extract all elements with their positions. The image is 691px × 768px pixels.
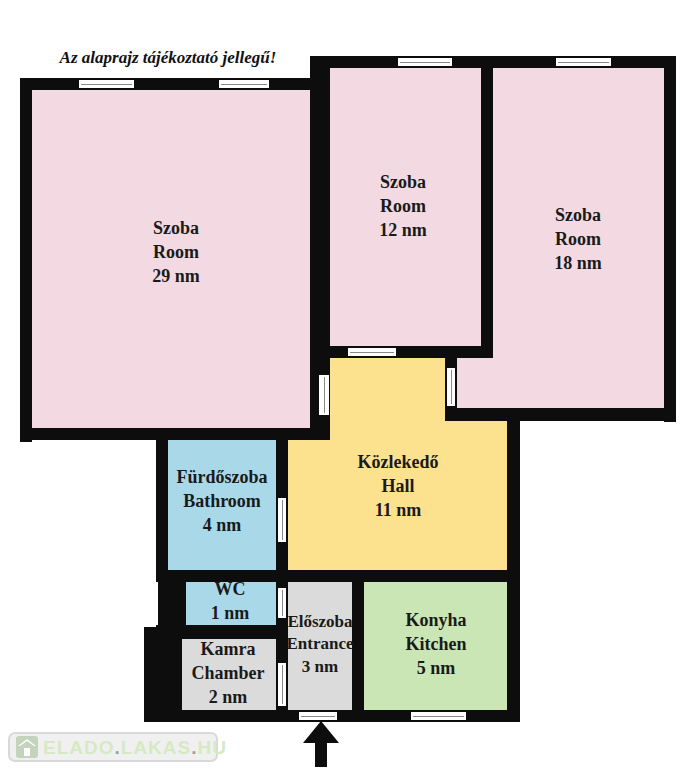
room-name-hu: Kamra [192,638,265,662]
wall [507,408,520,722]
room-18-area [457,358,493,408]
room-name-en: Room [152,241,200,265]
room-name-hu: Szoba [152,217,200,241]
room-name-en: Room [554,228,602,252]
window [555,57,612,67]
room-name-en: Room [379,195,427,219]
room-29-label: Szoba Room 29 nm [152,217,200,288]
kitchen-label: Konyha Kitchen 5 nm [405,609,466,680]
room-area: 18 nm [554,252,602,276]
window [78,79,135,89]
room-name-hu: Konyha [405,609,466,633]
room-12-label: Szoba Room 12 nm [379,171,427,242]
room-name-en: Chamber [192,662,265,686]
room-area: 5 nm [405,657,466,681]
wall [144,627,182,722]
wall [664,56,676,422]
house-icon [16,736,38,758]
room-name-en: Hall [358,475,439,499]
room-name-hu: Szoba [554,204,602,228]
room-area: 1 nm [211,602,250,626]
room-area: 29 nm [152,265,200,289]
door-opening [318,375,330,415]
entrance-label: Előszoba Entrance 3 nm [286,611,353,678]
door-opening [446,368,456,406]
room-name-hu: Közlekedő [358,451,439,475]
room-area: 2 nm [192,686,265,710]
door-opening [277,498,287,542]
watermark-text: ELADO.LAKAS.HU [43,738,227,757]
room-area: 4 nm [176,514,267,538]
room-area: 12 nm [379,219,427,243]
wall [481,56,493,358]
wall [20,78,32,442]
room-name-hu: Szoba [379,171,427,195]
room-18-label: Szoba Room 18 nm [554,204,602,275]
watermark-badge: ELADO.LAKAS.HU [8,732,218,762]
disclaimer-text: Az alaprajz tájékoztató jellegű! [18,48,318,68]
hall-label: Közlekedő Hall 11 nm [358,451,439,522]
room-area: 11 nm [358,499,439,523]
wall [156,428,168,582]
floorplan: Az alaprajz tájékoztató jellegű! Szoba [0,0,691,768]
window [397,57,453,67]
room-area: 3 nm [286,656,353,678]
bathroom-label: Fürdőszoba Bathroom 4 nm [176,466,267,537]
room-name-hu: Előszoba [286,611,353,633]
wall [310,56,676,68]
room-name-hu: WC [211,578,250,602]
chamber-label: Kamra Chamber 2 nm [192,638,265,709]
entrance-door [298,711,338,721]
door-opening [347,347,397,357]
room-name-en: Entrance [286,634,353,656]
hall-area [445,420,507,570]
wall [445,408,676,421]
wall [352,570,364,722]
window [410,711,467,721]
wc-label: WC 1 nm [211,578,250,626]
room-name-hu: Fürdőszoba [176,466,267,490]
wall [20,78,322,90]
hall-area [288,440,330,570]
window [218,79,270,89]
entrance-arrow-icon [299,721,343,767]
room-name-en: Kitchen [405,633,466,657]
room-name-en: Bathroom [176,490,267,514]
